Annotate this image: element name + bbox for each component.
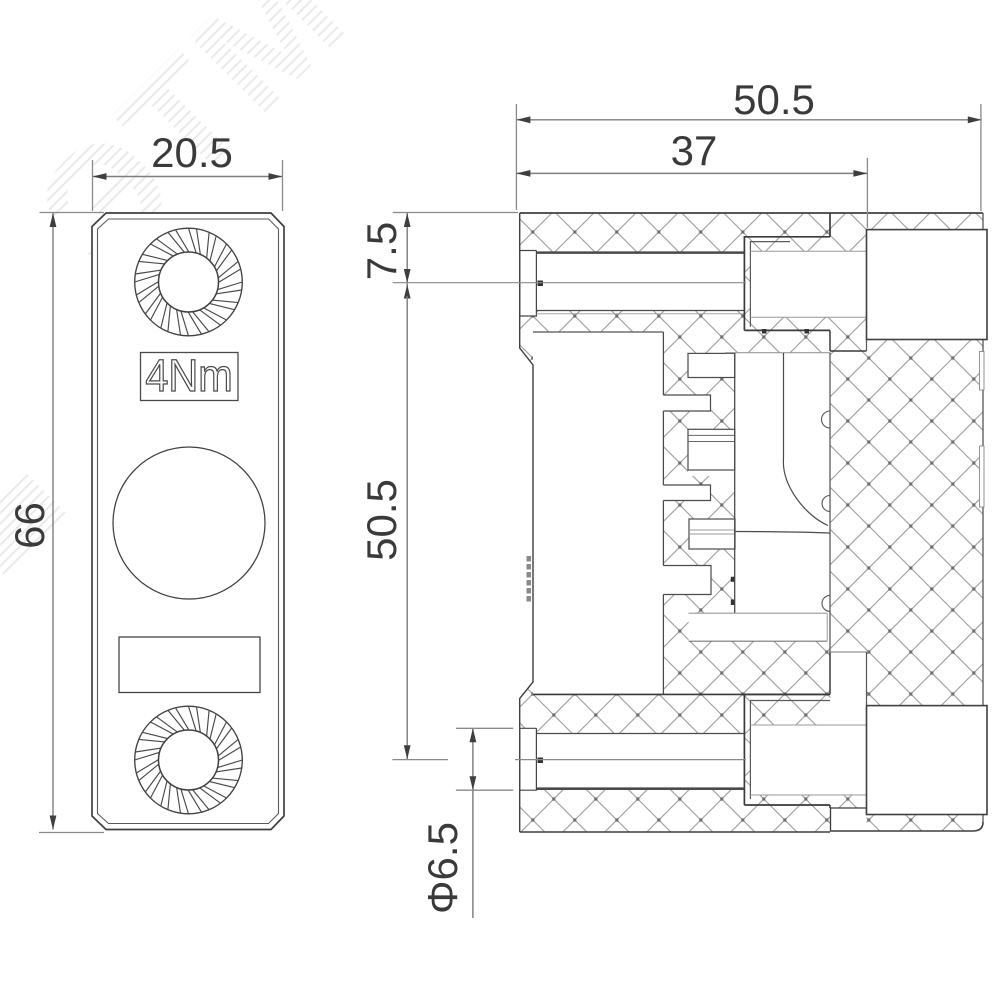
- svg-text:50.5: 50.5: [358, 479, 405, 561]
- svg-text:Φ6.5: Φ6.5: [419, 822, 466, 914]
- svg-text:66: 66: [6, 502, 53, 549]
- svg-text:20.5: 20.5: [151, 129, 233, 176]
- svg-text:37: 37: [671, 127, 718, 174]
- svg-text:7.5: 7.5: [358, 222, 405, 280]
- svg-text:4Nm: 4Nm: [145, 351, 232, 401]
- svg-text:50.5: 50.5: [733, 76, 815, 123]
